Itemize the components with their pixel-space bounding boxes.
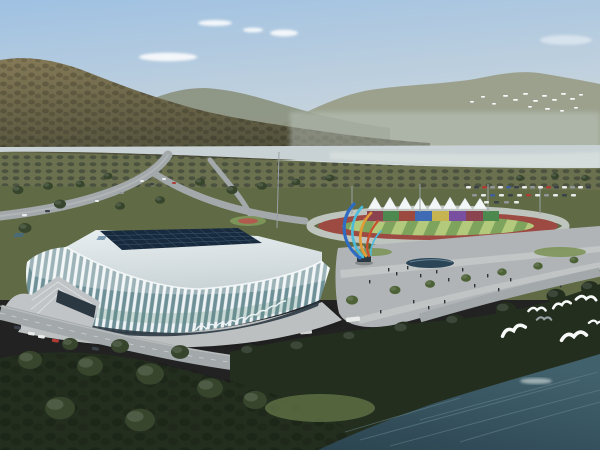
grandstand-rainbow-wall xyxy=(367,211,499,221)
plaza-lawn-2 xyxy=(534,247,586,257)
aerial-rendering: Aerial rendering of a white latticed sta… xyxy=(0,0,600,450)
roundabout-flowers xyxy=(238,218,258,224)
scene-svg: Aerial rendering of a white latticed sta… xyxy=(0,0,600,450)
water-reflection xyxy=(520,378,552,384)
foreground-lawn xyxy=(265,394,375,422)
